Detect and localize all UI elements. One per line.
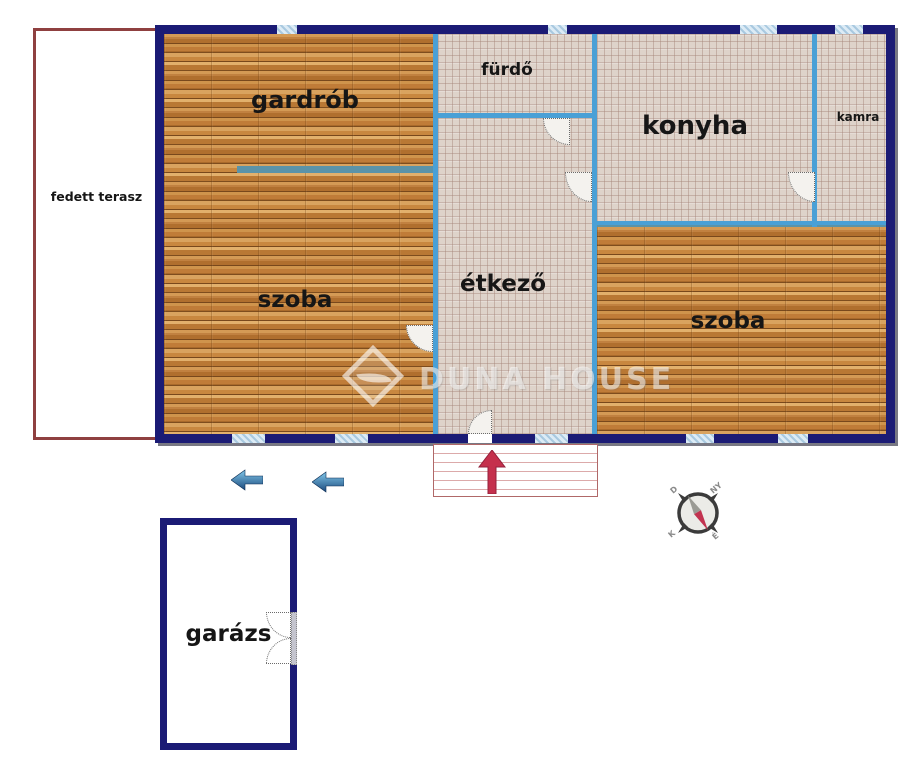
window-bottom-dining bbox=[535, 434, 568, 443]
garage-door-panel bbox=[291, 612, 297, 665]
window-bottom-room-left-1 bbox=[232, 434, 265, 443]
window-top-bathroom bbox=[548, 25, 567, 34]
floor-plan-canvas: fedett terasz bbox=[0, 0, 915, 768]
room-label-dining: étkező bbox=[460, 271, 546, 297]
window-bottom-room-right-1 bbox=[686, 434, 714, 443]
room-covered-terrace: fedett terasz bbox=[33, 28, 160, 440]
main-building: DUNA HOUSE gardrób fürdő konyha kamra sz… bbox=[155, 25, 895, 443]
window-top-wardrobe bbox=[277, 25, 297, 34]
wall-corridor-right bbox=[592, 34, 597, 434]
entry-arrow-icon bbox=[478, 450, 506, 494]
room-label-room-right: szoba bbox=[691, 308, 766, 334]
wall-corridor-left bbox=[433, 34, 438, 434]
room-label-terrace: fedett terasz bbox=[36, 189, 157, 204]
entrance-steps bbox=[433, 444, 598, 497]
compass-label-south: D bbox=[669, 484, 680, 495]
room-label-bathroom: fürdő bbox=[481, 60, 533, 80]
room-label-pantry: kamra bbox=[837, 110, 880, 124]
wall-kitchen-bottom bbox=[597, 221, 886, 227]
window-bottom-room-left-2 bbox=[335, 434, 368, 443]
window-bottom-room-right-2 bbox=[778, 434, 808, 443]
room-label-wardrobe: gardrób bbox=[251, 86, 359, 114]
entrance-opening bbox=[468, 434, 492, 443]
room-label-room-left: szoba bbox=[258, 287, 333, 313]
room-label-kitchen: konyha bbox=[642, 111, 748, 141]
floor-tile-corridor bbox=[438, 34, 592, 434]
west-arrow-icon-1 bbox=[231, 469, 263, 491]
room-garage: garázs bbox=[160, 518, 297, 750]
compass-label-north: É bbox=[709, 530, 720, 542]
wall-wardrobe-divider bbox=[237, 166, 433, 173]
compass-label-east: K bbox=[667, 528, 678, 539]
west-arrow-icon-2 bbox=[312, 471, 344, 493]
window-top-pantry bbox=[835, 25, 863, 34]
window-top-kitchen bbox=[740, 25, 777, 34]
compass-icon: D NY K É bbox=[663, 478, 733, 548]
wall-bathroom-bottom bbox=[433, 113, 597, 118]
compass-label-west: NY bbox=[709, 480, 725, 495]
